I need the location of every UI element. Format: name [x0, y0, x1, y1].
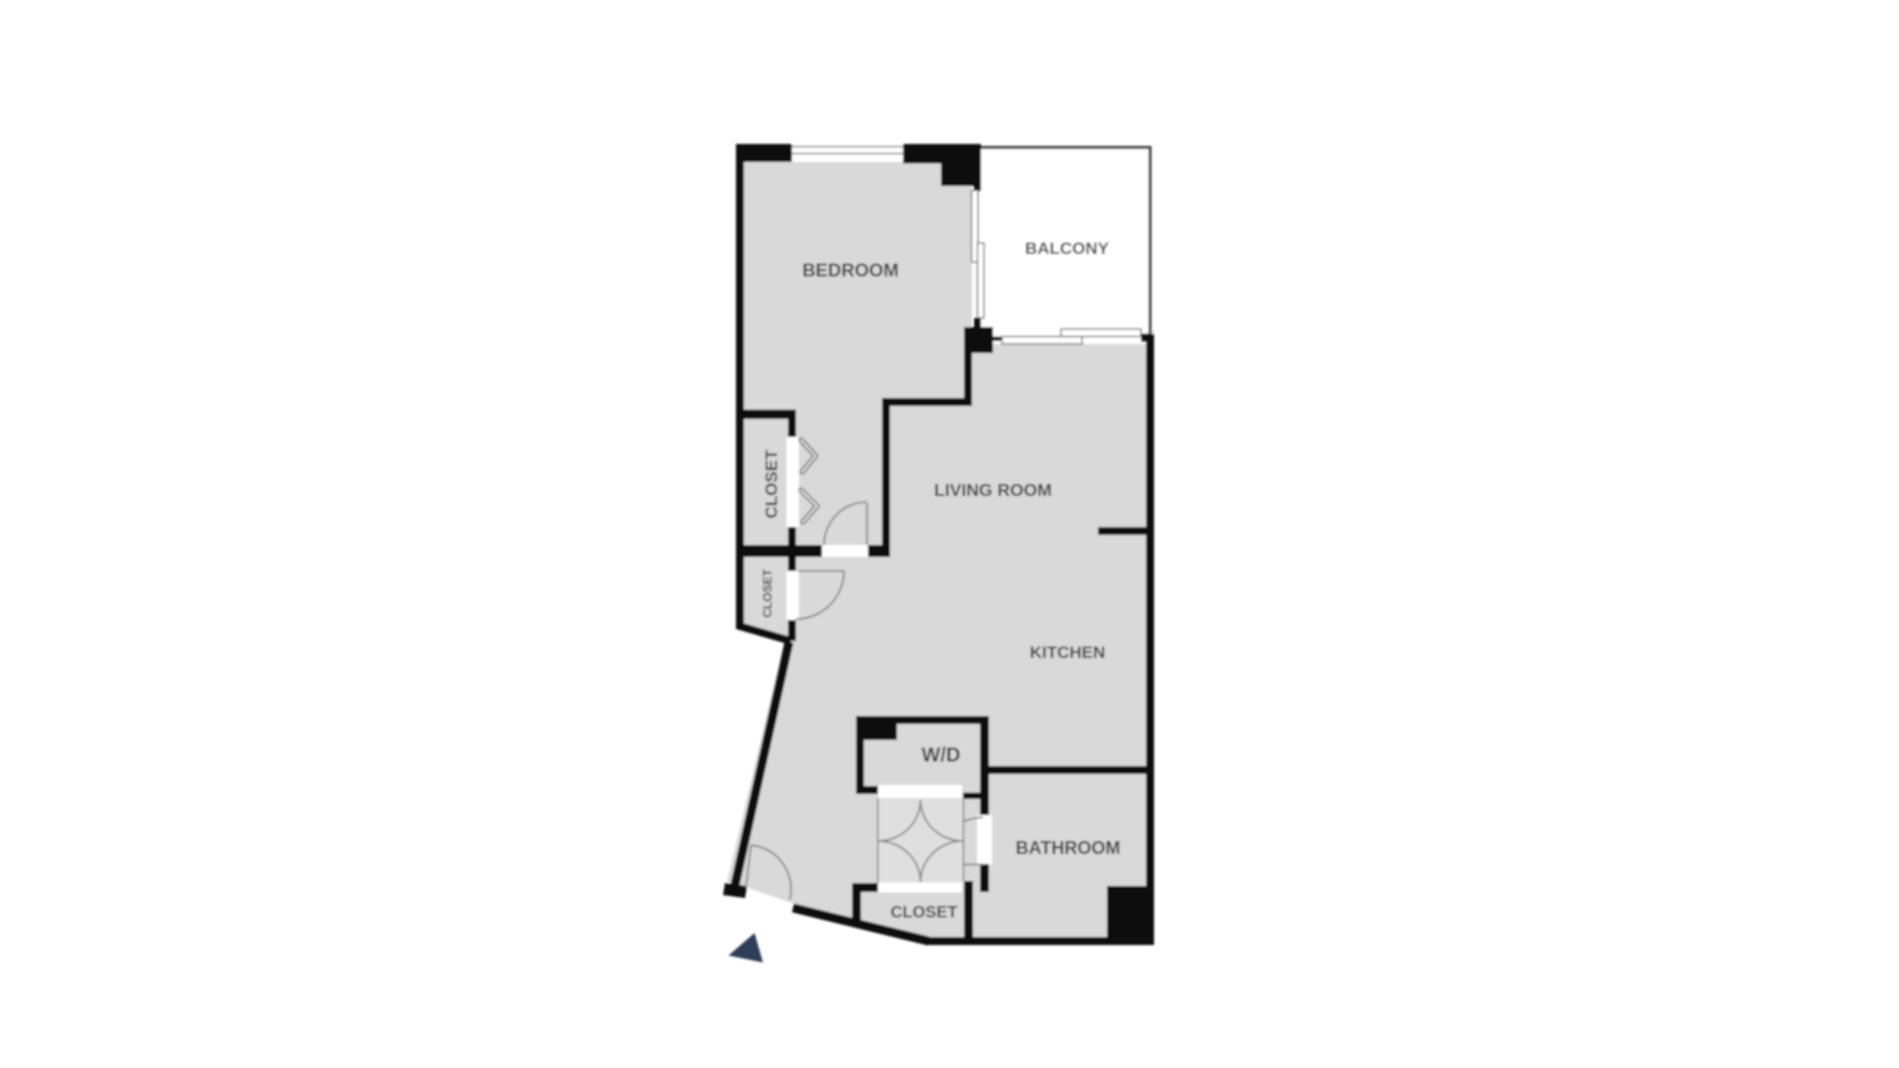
svg-text:CLOSET: CLOSET	[762, 449, 781, 519]
svg-text:CLOSET: CLOSET	[891, 904, 958, 922]
svg-text:KITCHEN: KITCHEN	[1030, 643, 1106, 662]
svg-text:LIVING ROOM: LIVING ROOM	[934, 480, 1052, 500]
svg-text:BATHROOM: BATHROOM	[1016, 838, 1121, 858]
svg-text:W/D: W/D	[922, 745, 961, 767]
svg-text:CLOSET: CLOSET	[761, 568, 775, 617]
svg-text:BALCONY: BALCONY	[1025, 239, 1110, 258]
svg-text:BEDROOM: BEDROOM	[802, 259, 899, 280]
